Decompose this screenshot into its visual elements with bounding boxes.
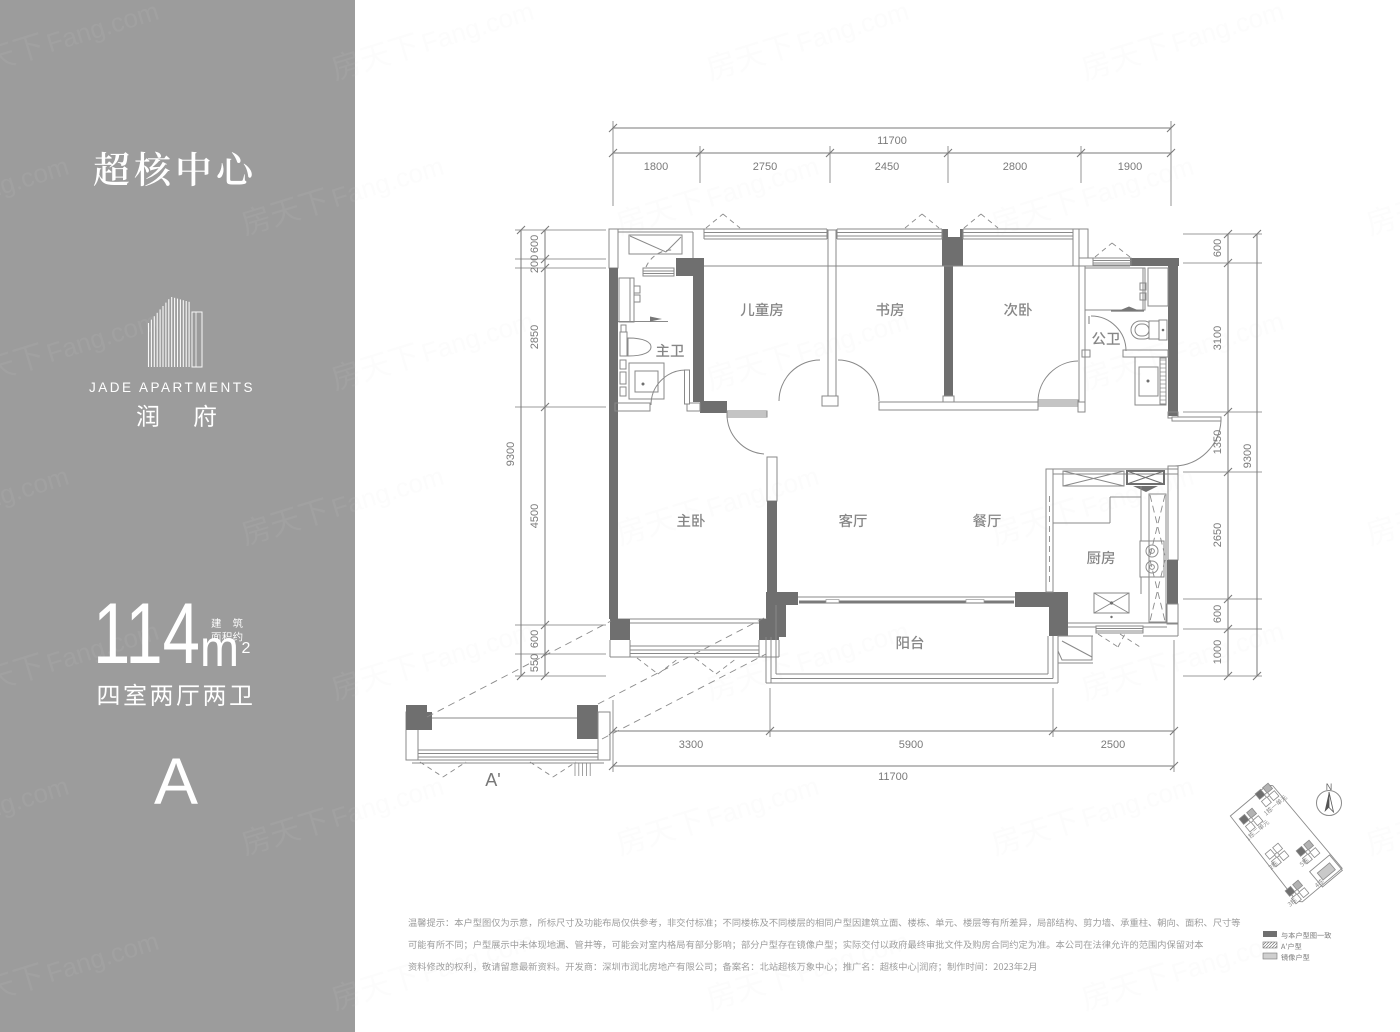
svg-text:600: 600 <box>529 235 541 253</box>
svg-text:A': A' <box>485 770 500 790</box>
svg-text:2800: 2800 <box>1003 161 1027 173</box>
svg-text:2750: 2750 <box>753 161 777 173</box>
svg-text:2850: 2850 <box>529 325 541 349</box>
svg-text:550: 550 <box>529 654 541 672</box>
svg-text:9300: 9300 <box>1242 444 1254 468</box>
svg-text:A: A <box>154 744 198 818</box>
svg-text:5900: 5900 <box>899 739 923 751</box>
svg-text:2450: 2450 <box>875 161 899 173</box>
svg-text:1000: 1000 <box>1212 640 1224 664</box>
svg-text:11700: 11700 <box>877 135 907 147</box>
svg-text:11700: 11700 <box>878 771 908 783</box>
svg-text:600: 600 <box>1212 605 1224 623</box>
svg-text:600: 600 <box>529 630 541 648</box>
svg-text:2650: 2650 <box>1212 523 1224 547</box>
svg-text:1350: 1350 <box>1212 430 1224 454</box>
svg-text:3300: 3300 <box>679 739 703 751</box>
svg-text:4500: 4500 <box>529 504 541 528</box>
svg-text:1800: 1800 <box>644 161 668 173</box>
svg-text:600: 600 <box>1212 239 1224 257</box>
svg-text:9300: 9300 <box>505 442 517 466</box>
svg-text:1900: 1900 <box>1118 161 1142 173</box>
svg-text:N: N <box>1326 782 1333 792</box>
svg-text:2: 2 <box>242 640 251 657</box>
svg-text:m: m <box>200 620 239 678</box>
svg-text:2500: 2500 <box>1101 739 1125 751</box>
svg-text:3100: 3100 <box>1212 326 1224 350</box>
svg-text:200: 200 <box>529 255 541 273</box>
svg-text:JADE APARTMENTS: JADE APARTMENTS <box>89 380 255 395</box>
